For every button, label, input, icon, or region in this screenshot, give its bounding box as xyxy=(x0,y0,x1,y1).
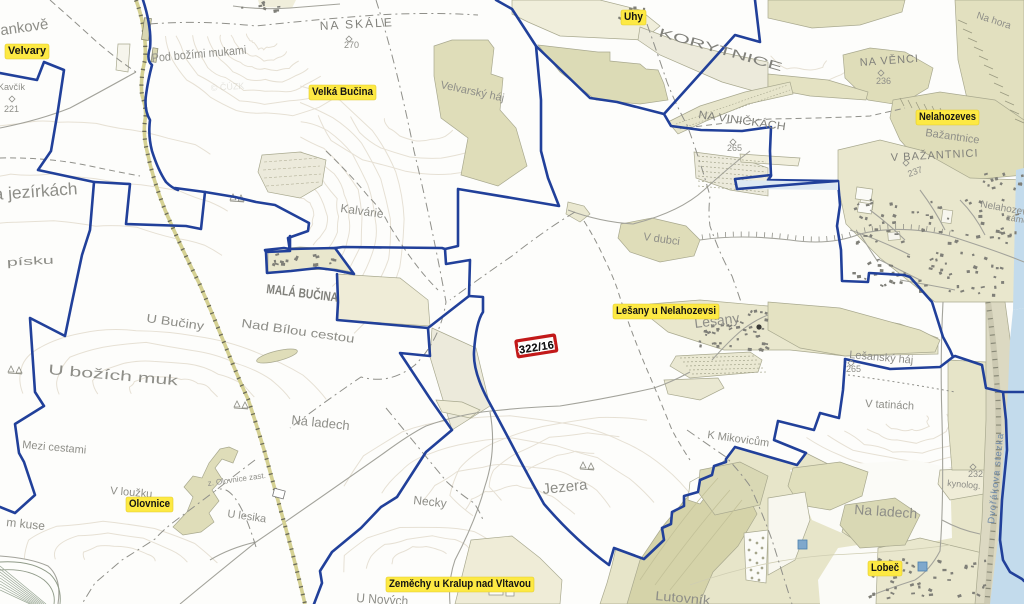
svg-text:221: 221 xyxy=(4,104,19,114)
svg-text:232: 232 xyxy=(968,469,983,479)
svg-text:236: 236 xyxy=(876,76,891,86)
svg-text:Kavčík: Kavčík xyxy=(0,82,26,92)
svg-text:Nelahozeves: Nelahozeves xyxy=(919,111,976,123)
svg-text:Velvary: Velvary xyxy=(8,45,47,57)
svg-text:Lobeč: Lobeč xyxy=(871,562,899,574)
svg-text:265: 265 xyxy=(727,143,742,153)
svg-text:265: 265 xyxy=(846,364,861,374)
svg-text:Zeměchy u Kralup nad Vltavou: Zeměchy u Kralup nad Vltavou xyxy=(389,578,531,590)
svg-text:Uhy: Uhy xyxy=(624,11,644,23)
svg-text:Velká Bučina: Velká Bučina xyxy=(312,86,374,98)
svg-text:270: 270 xyxy=(344,40,359,50)
svg-text:Olovnice: Olovnice xyxy=(129,498,170,510)
svg-text:Lešany u Nelahozevsi: Lešany u Nelahozevsi xyxy=(616,305,716,317)
svg-text:písku: písku xyxy=(7,255,55,269)
svg-text:V tatinách: V tatinách xyxy=(865,398,914,413)
